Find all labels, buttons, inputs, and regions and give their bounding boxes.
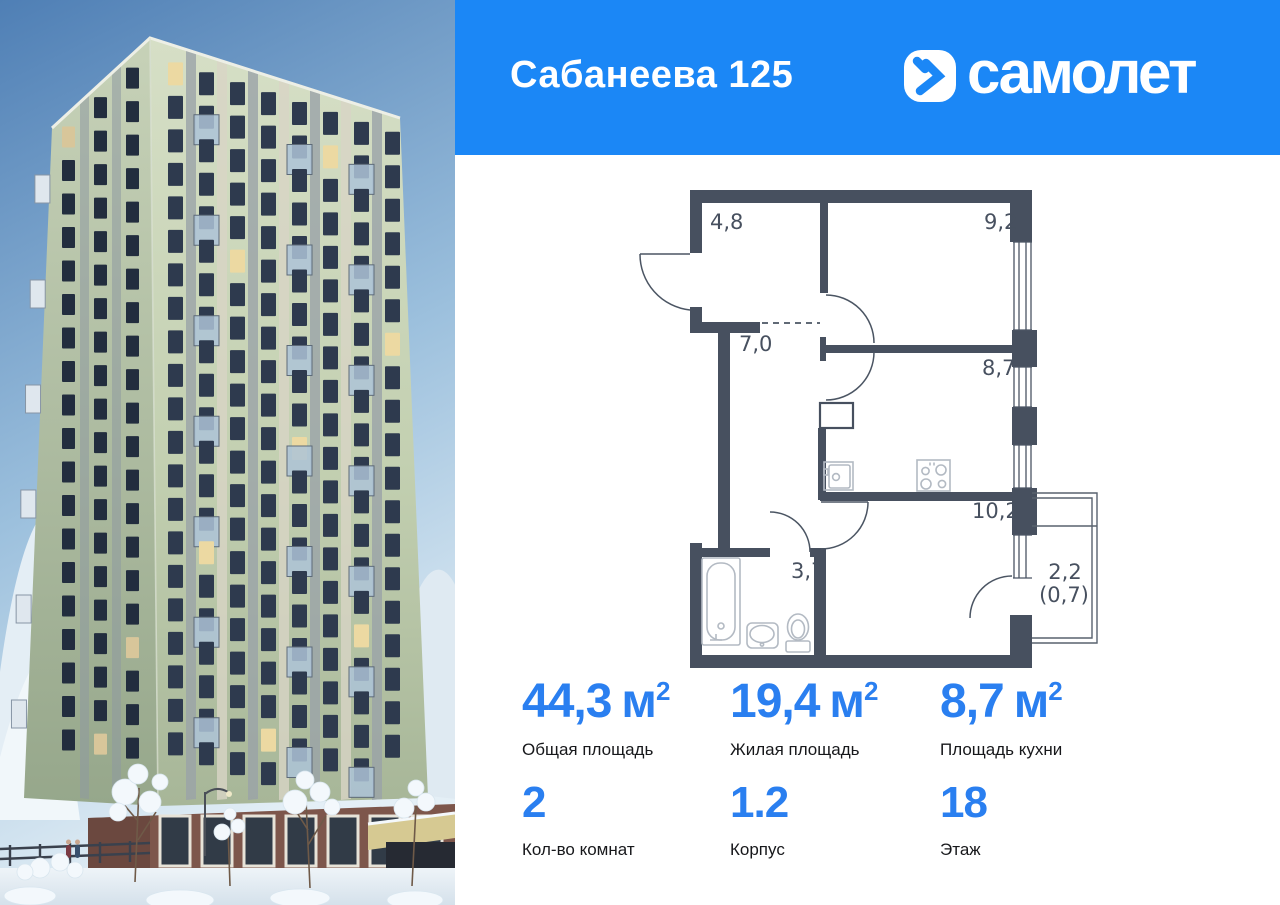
tower <box>11 38 428 806</box>
stat-value: 19,4м2 <box>730 677 877 727</box>
room-area-label: (0,7) <box>1039 583 1089 607</box>
stat-floor-number: 18 Этаж <box>940 780 987 860</box>
stat-value: 44,3м2 <box>522 677 669 727</box>
duct-shaft <box>820 403 853 428</box>
stat-value: 1.2 <box>730 780 788 826</box>
room-area-label: 4,8 <box>710 210 743 234</box>
stat-label: Кол-во комнат <box>522 840 635 860</box>
stat-value: 18 <box>940 780 987 826</box>
room-area-label: 3,7 <box>791 559 824 583</box>
stat-label: Этаж <box>940 840 987 860</box>
room-area-label: 9,2 <box>984 210 1017 234</box>
stat-total-area: 44,3м2 Общая площадь <box>522 677 669 760</box>
stat-label: Общая площадь <box>522 740 669 760</box>
stat-label: Корпус <box>730 840 788 860</box>
toilet-icon <box>788 614 809 640</box>
stat-living-area: 19,4м2 Жилая площадь <box>730 677 877 760</box>
stat-value: 2 <box>522 780 635 826</box>
room-area-label: 10,2 <box>972 499 1019 523</box>
header: Сабанеева 125 самолет <box>455 0 1280 155</box>
room-area-label: 2,2 <box>1048 560 1081 584</box>
building-photo <box>0 0 455 905</box>
page-title: Сабанеева 125 <box>510 54 793 97</box>
stat-rooms-count: 2 Кол-во комнат <box>522 780 635 860</box>
brand-logo: самолет <box>904 47 1195 105</box>
floor-plan: 4,8 9,2 7,0 8,7 10,2 3,7 2,2 (0,7) <box>630 180 1100 680</box>
room-area-label: 8,7 <box>982 356 1015 380</box>
listing-card: Сабанеева 125 самолет <box>0 0 1280 905</box>
content-area: 4,8 9,2 7,0 8,7 10,2 3,7 2,2 (0,7) 44,3м… <box>455 155 1280 905</box>
building-illustration <box>0 0 455 905</box>
stat-label: Жилая площадь <box>730 740 877 760</box>
room-area-label: 7,0 <box>739 332 772 356</box>
walls <box>690 190 1037 668</box>
stat-building-number: 1.2 Корпус <box>730 780 788 860</box>
stat-value: 8,7м2 <box>940 677 1062 727</box>
info-panel: Сабанеева 125 самолет <box>455 0 1280 905</box>
brand-name: самолет <box>967 43 1195 109</box>
samolet-logo-icon <box>904 50 956 102</box>
stat-kitchen-area: 8,7м2 Площадь кухни <box>940 677 1062 760</box>
stat-label: Площадь кухни <box>940 740 1062 760</box>
